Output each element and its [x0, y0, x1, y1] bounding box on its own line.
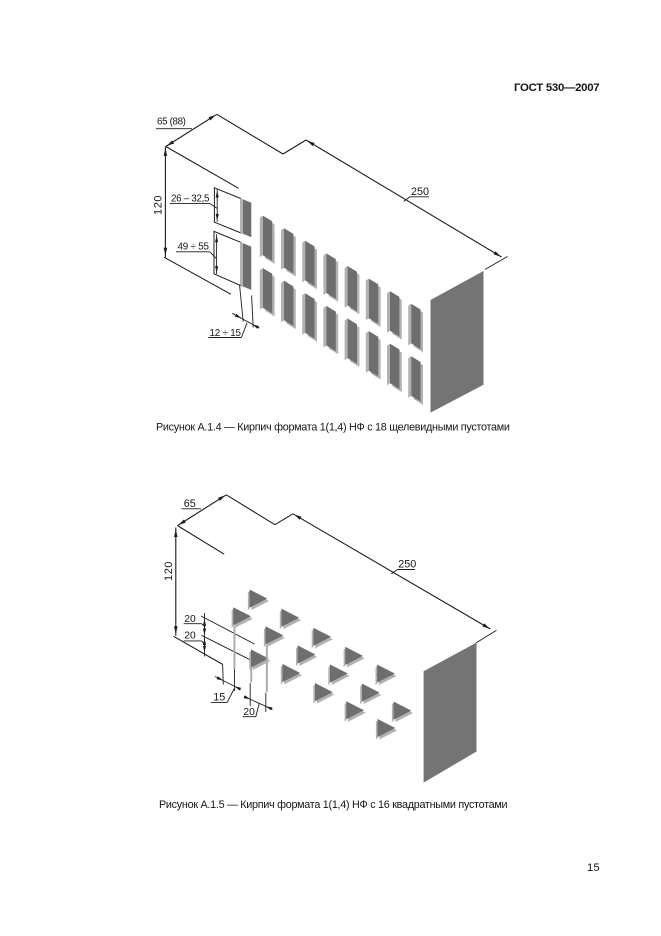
svg-text:Рисунок А.1.5 — Кирпич формата: Рисунок А.1.5 — Кирпич формата 1(1,4) НФ… [159, 799, 508, 811]
svg-text:15: 15 [213, 692, 225, 704]
svg-text:65 (88): 65 (88) [157, 117, 186, 128]
svg-text:120: 120 [163, 561, 175, 581]
svg-text:20: 20 [184, 614, 196, 625]
svg-text:15: 15 [587, 862, 600, 874]
svg-text:49 ÷ 55: 49 ÷ 55 [178, 242, 210, 253]
svg-text:ГОСТ 530—2007: ГОСТ 530—2007 [514, 82, 599, 94]
svg-text:120: 120 [153, 195, 165, 215]
svg-text:26 – 32,5: 26 – 32,5 [171, 193, 210, 204]
svg-text:Рисунок А.1.4 — Кирпич формата: Рисунок А.1.4 — Кирпич формата 1(1,4) НФ… [156, 422, 510, 434]
svg-text:20: 20 [184, 630, 196, 641]
svg-text:250: 250 [398, 558, 416, 570]
svg-text:65: 65 [184, 498, 196, 510]
